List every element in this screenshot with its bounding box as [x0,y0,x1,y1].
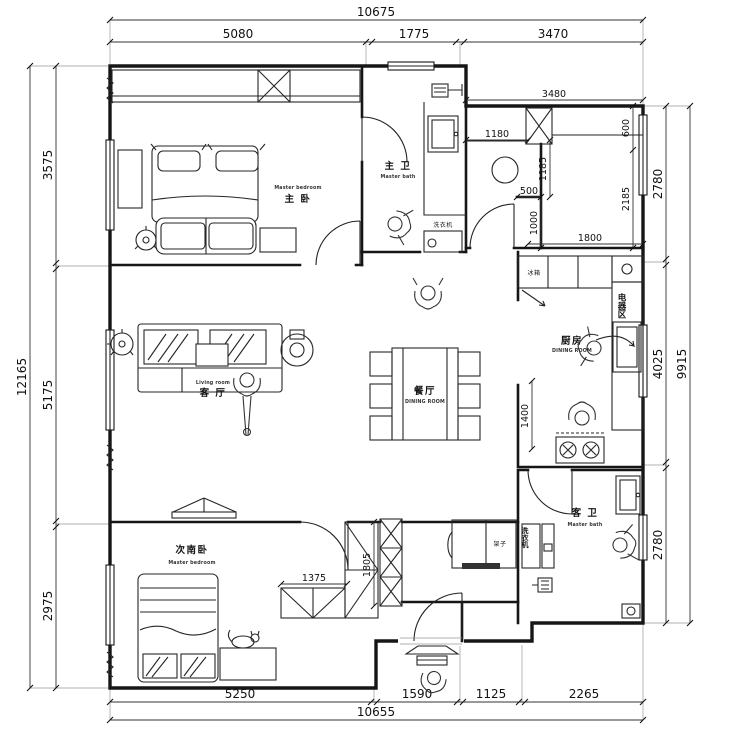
wardrobe-low [281,588,345,618]
fridge-counter [518,256,612,306]
dim-chain-left: 12165 3575 5175 2975 [15,63,110,691]
label-master-bath-zh: 主 卫 [385,160,412,172]
label-guest-bath-zh: 客 卫 [571,507,599,519]
sink-guest-bath [616,476,640,514]
room-ne [466,108,643,183]
column-box [258,70,290,102]
cabinet-x [380,519,402,606]
person-kitchen-stove [569,402,596,425]
room-master-bath: 主 卫 Master bath 洗衣机 [380,84,466,252]
pet-table [220,630,276,680]
dim-storage-width: 3480 [542,89,566,100]
dim-bottom-3: 1125 [476,687,507,701]
person-kitchen-sink [575,326,605,369]
ceiling-light [172,498,236,518]
dim-left-outer: 12165 [15,358,29,396]
dim-wardrobe-depth: 1805 [362,553,373,577]
door-guest-bath [528,470,572,514]
label-master-bath-en: Master bath [380,174,415,180]
person-toilet-master [384,205,416,246]
label-kitchen-en: DINING ROOM [552,348,592,354]
dim-left-1: 3575 [41,150,55,181]
floor-drain-icon [532,578,552,592]
label-living-zh: 客 厅 [199,387,227,399]
wardrobe-tall [345,522,378,618]
door-entrance [414,593,462,641]
corner-fixture [622,604,640,618]
door-second-bedroom [300,522,348,570]
label-kitchen-zh: 厨房 [561,335,583,347]
fan-right-icon [281,330,313,366]
window-left-living [106,330,114,430]
dim-bottom-4: 2265 [569,687,600,701]
dim-wardrobe-width: 1375 [302,573,326,584]
window-left-bedroom [106,140,114,230]
nightstand [260,228,296,252]
dim-shaft-upper: 1185 [538,157,549,181]
stove [556,433,604,463]
label-master-bedroom-zh: 主 卧 [285,193,312,205]
person-toilet-guest [610,524,639,563]
dim-shaft-width: 500 [520,186,538,197]
sink-master-bath [428,116,458,152]
window-right-guestbath [639,515,647,560]
column-box [526,108,552,144]
side-table [118,150,142,208]
dim-right-1: 2780 [651,169,665,200]
dim-kitchen-counter: 1400 [520,404,531,428]
dim-right-3: 2780 [651,530,665,561]
kitchen-sink [596,322,641,372]
dim-chain-right: 2780 4025 2780 9915 [643,103,693,626]
awning-icon [406,646,458,665]
room-dining: 餐厅 DINING ROOM [370,348,480,440]
dim-top-outer: 10675 [357,5,395,19]
door-ne-room [470,204,514,248]
room-second-bedroom: 次南卧 Master bedroom [138,498,402,682]
dim-neroom-width: 1800 [578,233,602,244]
room-master-bedroom: Master bedroom 主 卧 [112,70,360,254]
label-master-bedroom-en: Master bedroom [274,185,321,191]
dim-bottom-outer: 10655 [357,705,395,719]
dim-bottom-2: 1590 [402,687,433,701]
sofa-side-table [196,344,228,366]
dim-left-3: 2975 [41,591,55,622]
label-dining-en: DINING ROOM [405,399,445,405]
dim-shaft-lower: 1000 [529,211,540,235]
door-master-bedroom [316,221,360,265]
label-appliance-zone: 电器区 [616,292,627,319]
vanity-counter [424,102,466,215]
label-shelf: 架子 [493,540,506,548]
floor-plan-canvas: 10675 5080 1775 3470 5250 1590 1125 2265… [0,0,740,740]
fan-icon [135,226,157,250]
dim-left-2: 5175 [41,380,55,411]
label-living-en: Living room [196,380,230,386]
label-washing-machine: 洗衣机 [433,221,453,229]
label-second-bedroom-en: Master bedroom [168,560,215,566]
dim-neroom-height: 2185 [621,187,632,211]
door-master-bath [362,117,407,162]
dim-right-outer: 9915 [675,349,689,380]
dim-storage-left: 1180 [485,129,509,140]
washing-machine-master [424,231,462,252]
label-fridge: 冰箱 [527,269,540,277]
dim-storage-right-depth: 600 [621,119,632,137]
label-washing-machine-guest: 洗衣机 [521,526,530,549]
dim-top-1: 5080 [223,27,254,41]
room-guest-bath: 客 卫 Master bath 洗衣机 架子 [448,476,640,618]
person-hallway [413,278,443,309]
room-living: Living room 客 厅 [107,324,313,436]
dim-right-2: 4025 [651,349,665,380]
label-guest-bath-en: Master bath [567,522,602,528]
window-right-neroom [639,115,647,195]
bed-master [151,144,265,254]
dim-top-3: 3470 [538,27,569,41]
label-second-bedroom-zh: 次南卧 [175,544,208,556]
floor-plan-page: 10675 5080 1775 3470 5250 1590 1125 2265… [0,0,740,740]
wardrobe [112,70,360,102]
bed-second [138,574,218,682]
window-master-bath-top [388,62,434,70]
shower-head-icon [432,84,462,97]
label-dining-zh: 餐厅 [413,385,436,397]
window-left-bedroom2 [106,565,114,645]
person-living [234,373,261,436]
water-heater-icon [492,157,518,183]
dim-top-2: 1775 [399,27,430,41]
room-kitchen: 冰箱 厨房 DINING ROOM 电器区 [518,256,643,463]
